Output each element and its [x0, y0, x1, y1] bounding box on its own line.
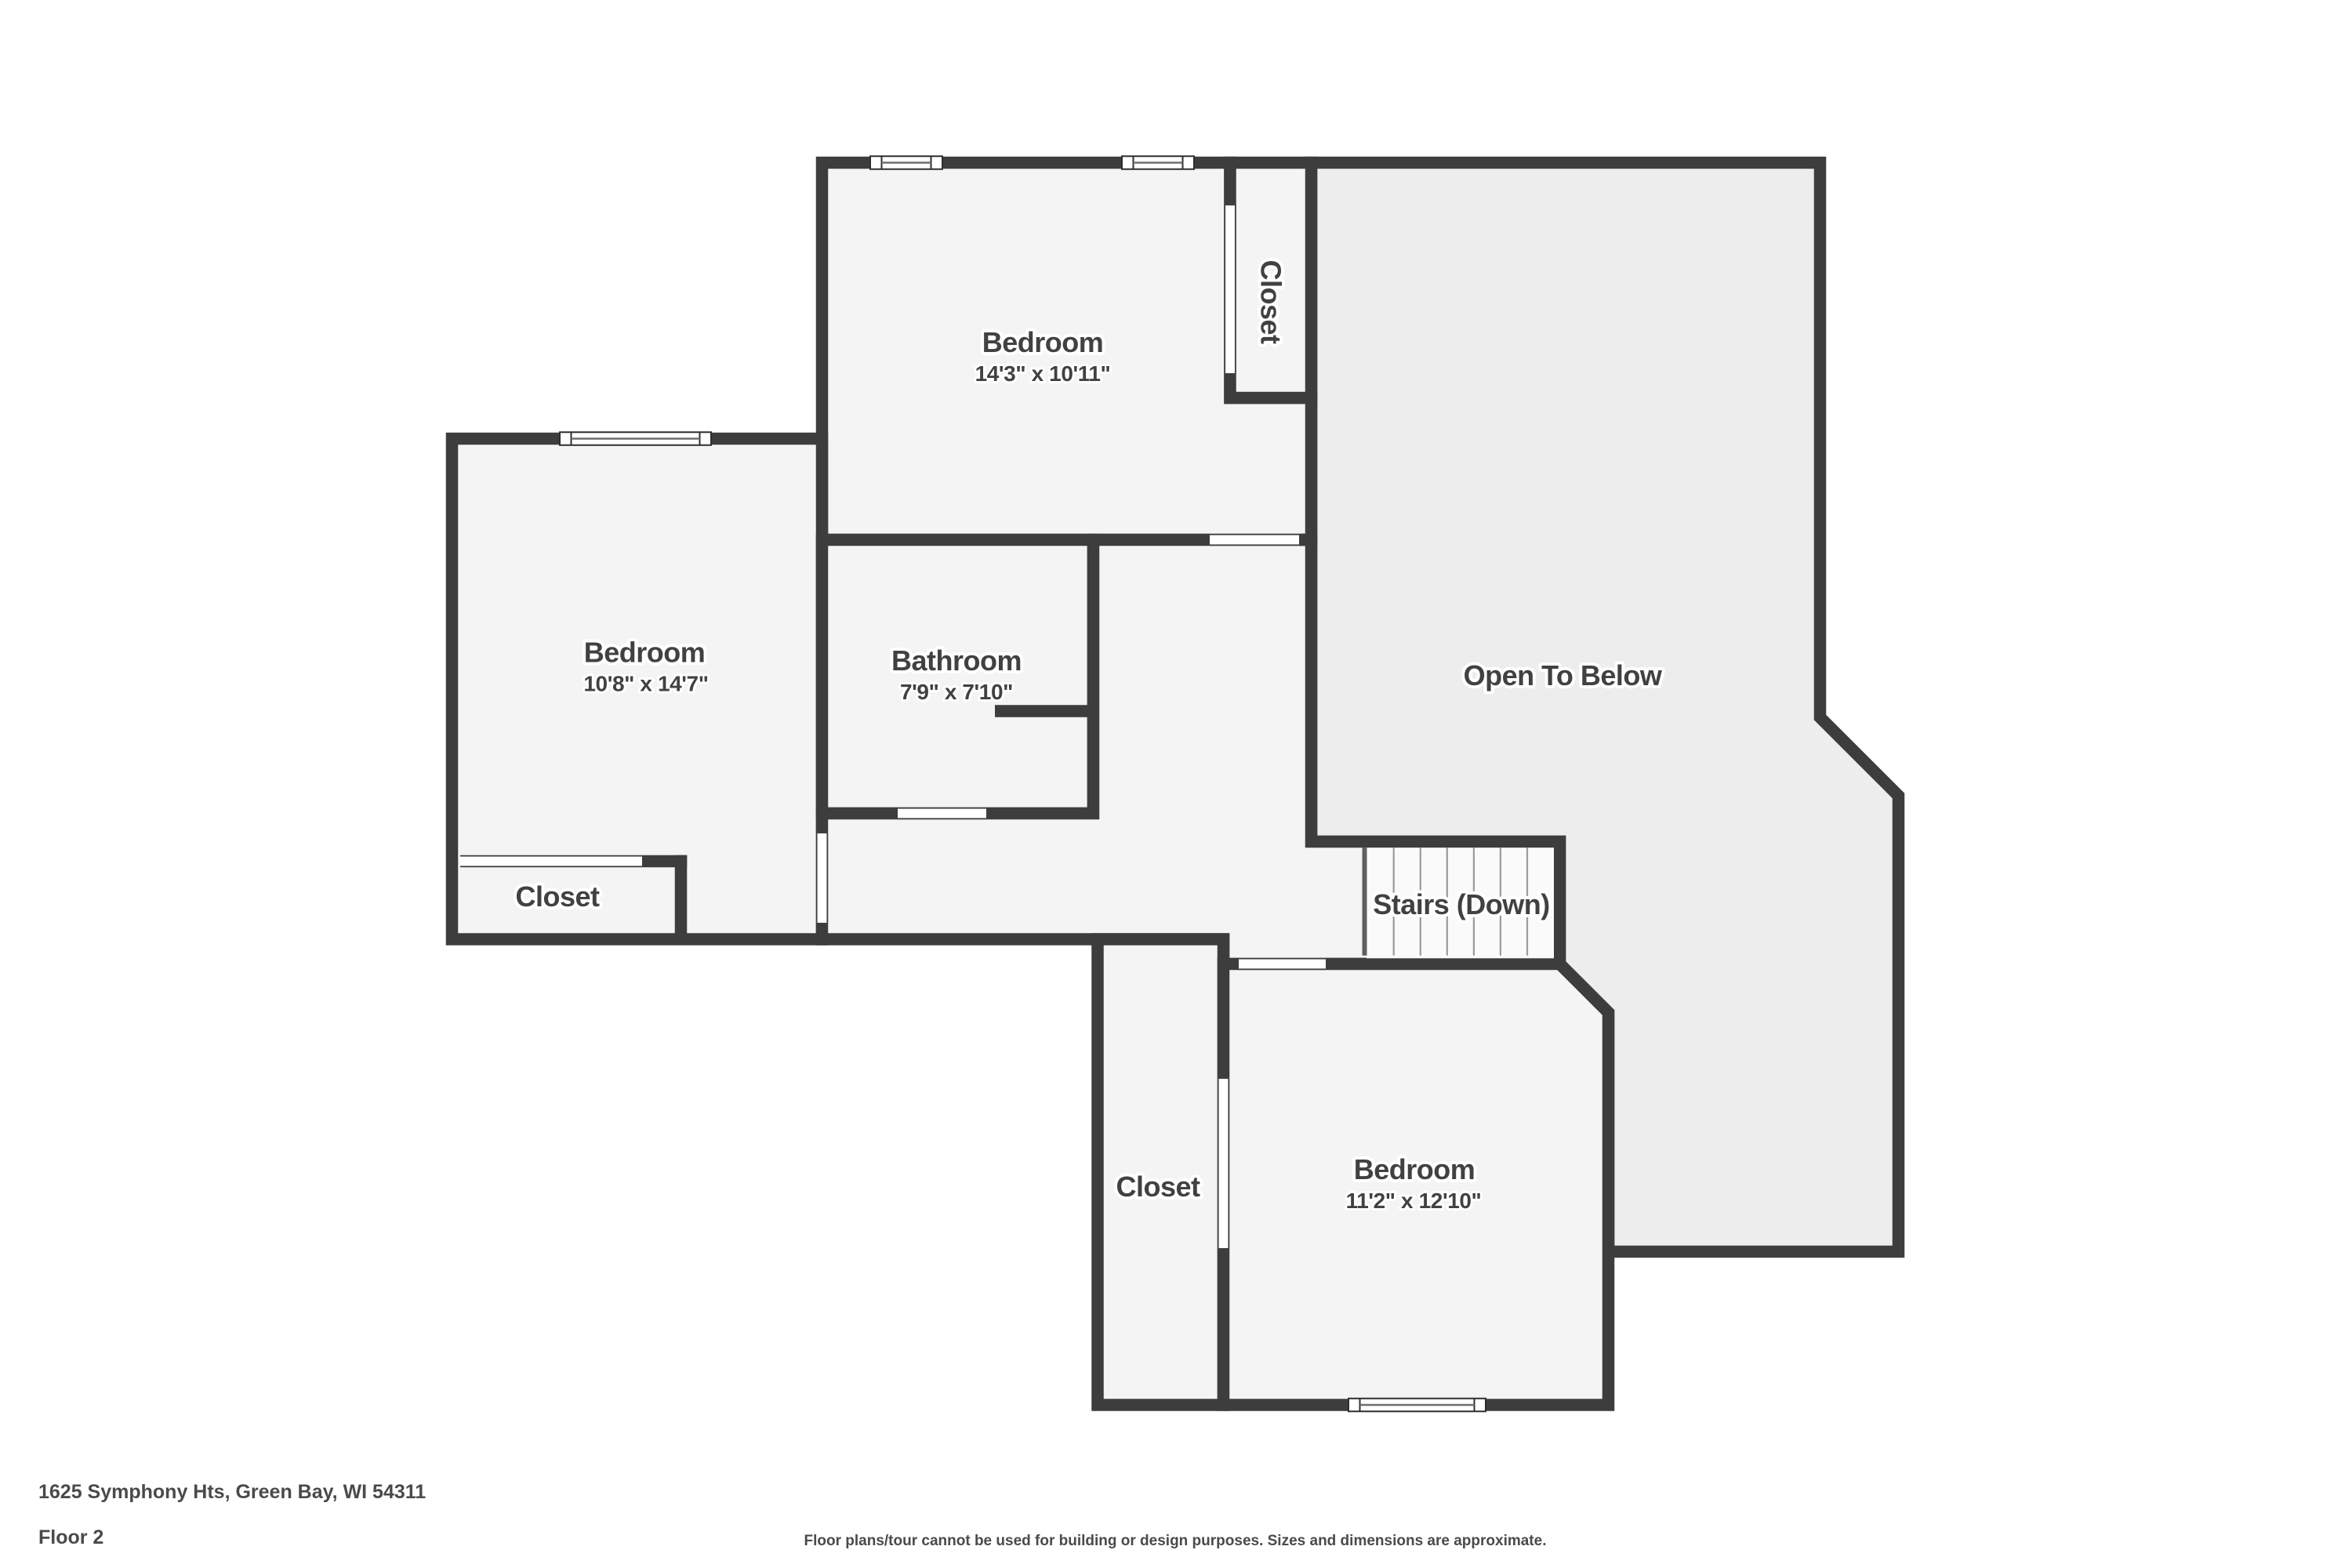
svg-text:Stairs (Down): Stairs (Down) — [1373, 888, 1550, 920]
svg-text:Open To Below: Open To Below — [1464, 659, 1663, 691]
svg-text:10'8" x 14'7": 10'8" x 14'7" — [583, 672, 708, 696]
svg-text:Floor 2: Floor 2 — [38, 1526, 103, 1548]
svg-text:Bathroom: Bathroom — [891, 644, 1022, 677]
svg-text:Closet: Closet — [1116, 1171, 1200, 1203]
svg-text:Floor plans/tour cannot be use: Floor plans/tour cannot be used for buil… — [804, 1533, 1547, 1549]
svg-text:14'3" x 10'11": 14'3" x 10'11" — [975, 361, 1111, 386]
svg-text:1625 Symphony Hts, Green Bay,: 1625 Symphony Hts, Green Bay, WI 54311 — [38, 1481, 426, 1503]
svg-text:7'9" x 7'10": 7'9" x 7'10" — [900, 680, 1013, 704]
svg-text:11'2" x 12'10": 11'2" x 12'10" — [1346, 1189, 1482, 1213]
svg-text:Bedroom: Bedroom — [982, 326, 1104, 358]
svg-text:Closet: Closet — [1255, 260, 1287, 344]
svg-text:Bedroom: Bedroom — [584, 637, 706, 669]
svg-text:Closet: Closet — [515, 880, 600, 913]
svg-text:Bedroom: Bedroom — [1354, 1153, 1475, 1185]
